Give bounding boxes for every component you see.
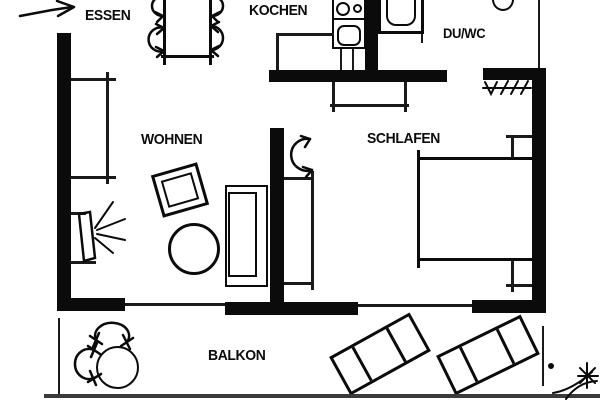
wardrobe-top-left-edge bbox=[332, 82, 335, 112]
dining-table-bottom-edge bbox=[161, 55, 214, 58]
wardrobe-top-front-edge bbox=[330, 104, 409, 107]
dining-chair-icon bbox=[149, 24, 164, 57]
ground-line bbox=[44, 394, 600, 398]
tv-stand-top bbox=[71, 212, 86, 215]
kitchen-counter-edge-v bbox=[276, 33, 279, 72]
lounger-divider bbox=[459, 347, 478, 382]
dining-chair-icon bbox=[152, 0, 163, 22]
dining-chair-icon bbox=[212, 0, 223, 22]
door-swing-icon bbox=[291, 136, 312, 177]
washbasin-icon bbox=[492, 0, 514, 11]
wall-left-exterior bbox=[57, 33, 71, 311]
nightstand-bottom-side bbox=[511, 260, 514, 292]
tv-stand-bottom bbox=[71, 261, 96, 264]
balcony-right-edge bbox=[542, 326, 544, 386]
wall-bottom-middle bbox=[225, 302, 358, 315]
kitchen-counter-edge-h bbox=[276, 33, 334, 36]
wall-duwc-right-line bbox=[538, 0, 540, 68]
sofa bbox=[225, 185, 268, 287]
room-label-schlafen: SCHLAFEN bbox=[367, 130, 440, 147]
wall-right-exterior bbox=[532, 68, 546, 313]
lounger-divider bbox=[495, 329, 514, 364]
entrance-arrow-icon bbox=[20, 1, 74, 16]
room-label-essen: ESSEN bbox=[85, 7, 130, 24]
room-label-wohnen: WOHNEN bbox=[141, 131, 202, 148]
balcony-left-edge bbox=[58, 318, 60, 397]
room-label-duwc: DU/WC bbox=[443, 25, 485, 41]
balcony-table bbox=[96, 346, 139, 389]
shelf-front-edge bbox=[106, 72, 109, 184]
wardrobe-side-top-edge bbox=[284, 177, 314, 180]
nightstand-top-side bbox=[511, 135, 514, 158]
radiator-icon bbox=[483, 81, 531, 94]
kitchen-sink-basin bbox=[337, 25, 361, 46]
armchair-seat bbox=[161, 172, 199, 208]
wardrobe-side-bottom-edge bbox=[284, 282, 314, 285]
burner-small-icon bbox=[353, 4, 362, 13]
wall-wohnen-schlafen bbox=[270, 128, 284, 302]
armchair bbox=[151, 162, 209, 218]
wall-duwc-bottom bbox=[483, 68, 546, 80]
coffee-table bbox=[168, 223, 220, 275]
burner-large-icon bbox=[336, 2, 350, 16]
room-label-kochen: KOCHEN bbox=[249, 2, 307, 19]
bed-foot-edge bbox=[417, 150, 420, 268]
sun-lounger-right bbox=[436, 315, 540, 396]
room-label-balkon: BALKON bbox=[208, 347, 265, 364]
wardrobe-side-front-edge bbox=[311, 171, 314, 290]
sink-unit-leg-right bbox=[352, 49, 354, 70]
balcony-window-schlafen bbox=[358, 304, 472, 307]
shower-edge-tick bbox=[421, 34, 423, 43]
bed-bottom-edge bbox=[417, 258, 533, 261]
sun-lounger-left bbox=[329, 312, 431, 395]
sink-unit-leg-left bbox=[340, 49, 342, 70]
wall-bottom-left bbox=[57, 298, 125, 311]
wardrobe-top-right-edge bbox=[404, 82, 407, 112]
sofa-seat bbox=[228, 192, 257, 277]
wall-kitchen-duwc bbox=[365, 0, 378, 70]
dining-chair-icon bbox=[211, 22, 223, 56]
bed-top-edge bbox=[417, 157, 533, 160]
shelf-bottom-edge bbox=[71, 176, 116, 179]
lounger-divider bbox=[386, 328, 407, 363]
shower-tray-inner bbox=[386, 0, 416, 26]
balcony-chair-icon bbox=[90, 323, 133, 349]
tv-icon bbox=[79, 202, 125, 261]
lounger-divider bbox=[351, 347, 372, 382]
wall-kitchen-bedroom bbox=[269, 70, 447, 82]
floorplan-canvas: ESSEN KOCHEN DU/WC WOHNEN SCHLAFEN BALKO… bbox=[0, 0, 600, 400]
shelf-top-edge bbox=[71, 78, 116, 81]
balcony-door-window-wohnen bbox=[125, 303, 225, 306]
